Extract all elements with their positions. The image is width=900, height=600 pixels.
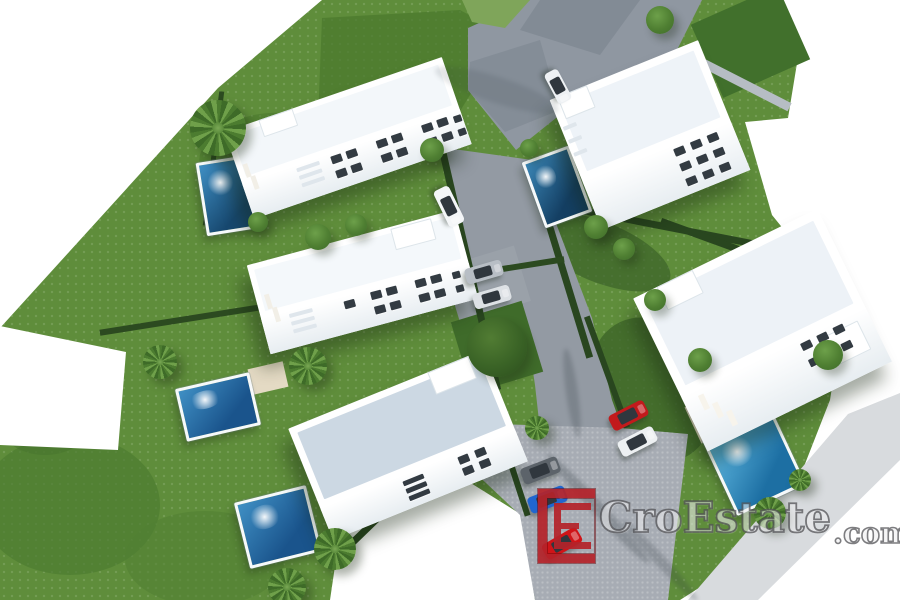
car-hood [494, 263, 502, 273]
car-hood [645, 429, 655, 440]
bush [420, 138, 444, 162]
olive-tree [467, 317, 527, 377]
palm-tree [289, 347, 327, 385]
aerial-site-plan-render: CroEstate .com [0, 0, 900, 600]
bush [688, 348, 712, 372]
bush [813, 340, 843, 370]
water-sparkle [533, 162, 560, 192]
car-hood [559, 93, 569, 102]
logo-inner-e [554, 503, 591, 549]
water-sparkle [247, 502, 282, 532]
palm-tree [190, 100, 246, 156]
car-hood [636, 403, 646, 414]
car-hood [450, 215, 461, 225]
palm-tree [525, 416, 549, 440]
bush [646, 6, 674, 34]
water-sparkle [188, 387, 223, 412]
bush [305, 224, 331, 250]
bush [248, 212, 268, 232]
palm-tree [268, 568, 306, 600]
palm-tree [314, 528, 356, 570]
watermark-suffix-text: .com [833, 519, 900, 548]
bush [613, 238, 635, 260]
watermark-brand-text: CroEstate [599, 497, 831, 539]
bush [345, 214, 367, 236]
car-hood [549, 459, 558, 470]
palm-tree [143, 345, 177, 379]
croestate-logo-icon [536, 487, 596, 549]
bush [584, 215, 608, 239]
car-hood [502, 288, 510, 298]
bush [520, 139, 538, 157]
car-cabin [473, 264, 494, 279]
car-cabin [528, 462, 550, 479]
water-sparkle [206, 168, 234, 197]
bush [644, 289, 666, 311]
car-cabin [481, 289, 502, 304]
watermark: CroEstate .com [536, 482, 900, 554]
logo-inner-e-bar [561, 523, 579, 529]
